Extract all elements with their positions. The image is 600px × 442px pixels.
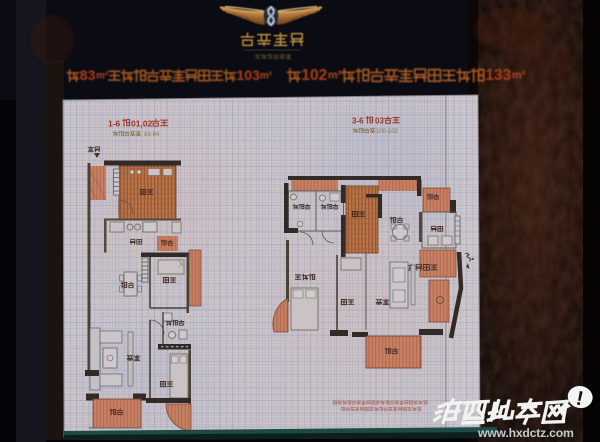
svg-text:m²: m² xyxy=(512,70,526,82)
svg-text:m²: m² xyxy=(96,71,109,82)
svg-text:83: 83 xyxy=(80,67,96,83)
svg-text:www.hxdctz.com: www.hxdctz.com xyxy=(477,426,574,440)
svg-text:133: 133 xyxy=(485,67,511,84)
svg-text:3-6: 3-6 xyxy=(352,117,364,126)
svg-text:83-84: 83-84 xyxy=(144,132,160,138)
svg-text:m²: m² xyxy=(328,70,342,82)
svg-text:103: 103 xyxy=(237,67,261,83)
svg-text:m²: m² xyxy=(260,71,273,82)
svg-text:100-102: 100-102 xyxy=(376,129,399,135)
svg-text:1-6: 1-6 xyxy=(108,119,121,129)
svg-text:102: 102 xyxy=(301,67,327,84)
svg-text:01,02: 01,02 xyxy=(131,119,153,129)
svg-text:03: 03 xyxy=(375,117,384,126)
